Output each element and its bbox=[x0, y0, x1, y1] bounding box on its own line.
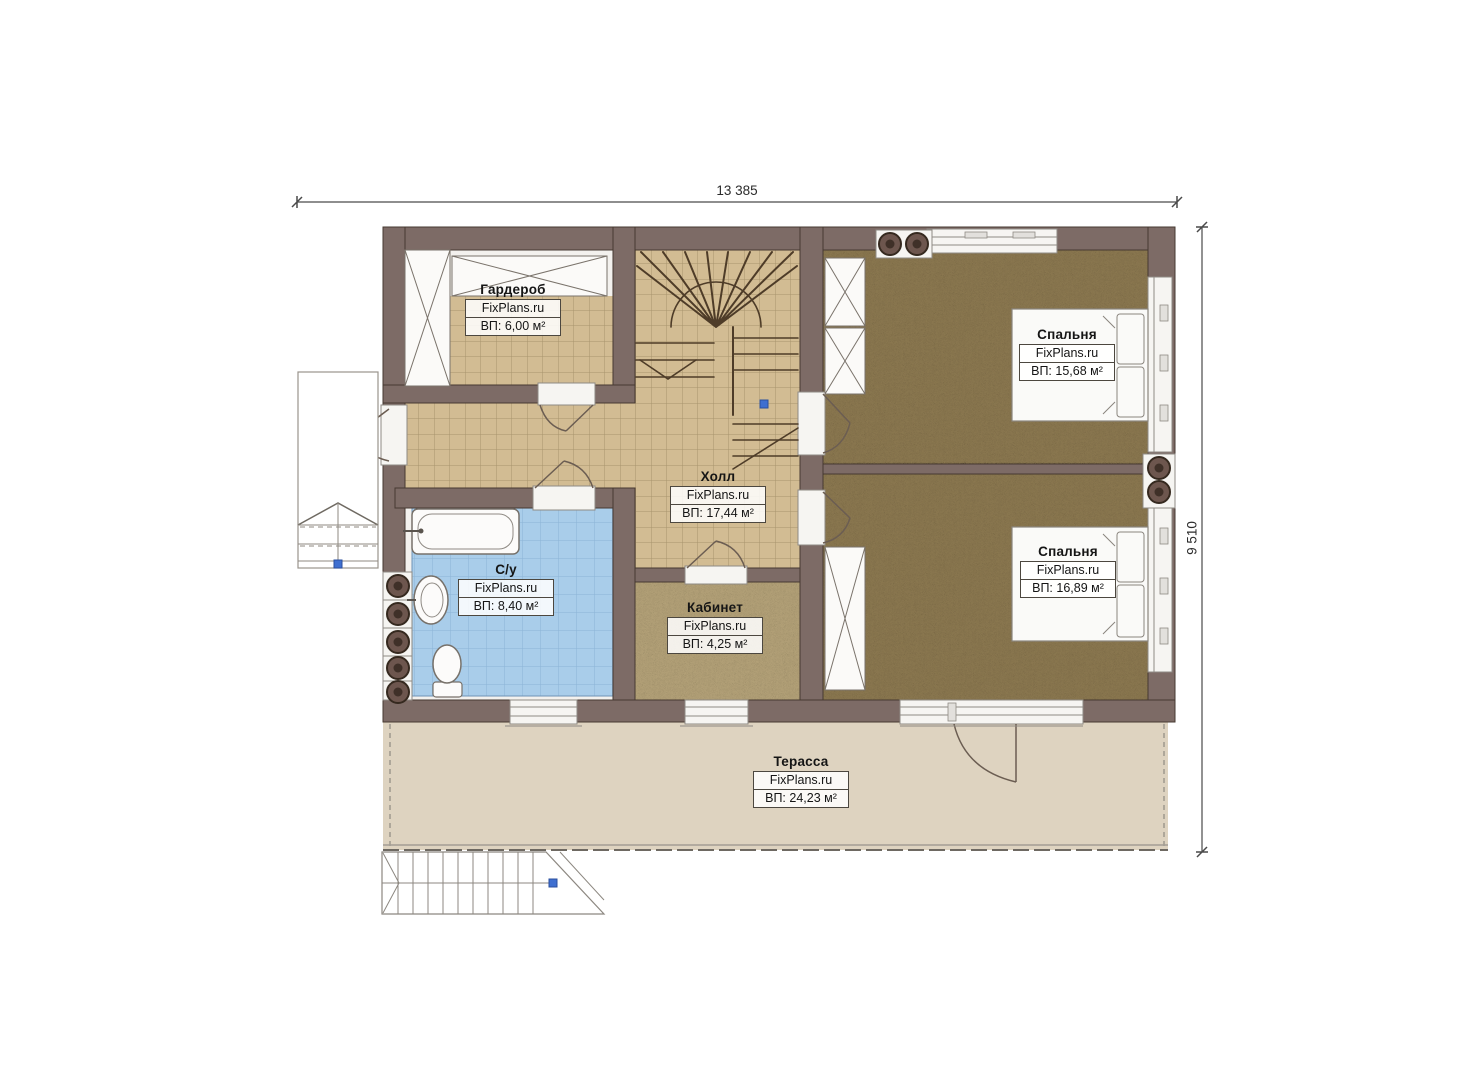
room-title: Терасса bbox=[753, 754, 849, 769]
bathtub bbox=[403, 509, 519, 554]
window-bedroom1 bbox=[1148, 277, 1172, 452]
room-title: Холл bbox=[670, 469, 766, 484]
dimension-width-label: 13 385 bbox=[710, 183, 763, 198]
room-brand: FixPlans.ru bbox=[670, 486, 766, 505]
room-area: ВП: 15,68 м² bbox=[1019, 362, 1115, 381]
room-brand: FixPlans.ru bbox=[667, 617, 763, 636]
closet-icon bbox=[825, 258, 865, 326]
wall-wardrobe-stairs bbox=[613, 227, 635, 403]
closet-icon bbox=[825, 547, 865, 690]
vent-block-top bbox=[876, 230, 932, 258]
room-label-bedroom2: Спальня FixPlans.ru ВП: 16,89 м² bbox=[1020, 544, 1116, 598]
room-brand: FixPlans.ru bbox=[458, 579, 554, 598]
room-label-office: Кабинет FixPlans.ru ВП: 4,25 м² bbox=[667, 600, 763, 654]
wall-hall-bedrooms bbox=[800, 227, 823, 700]
room-area: ВП: 4,25 м² bbox=[667, 635, 763, 654]
window-terrace-right bbox=[680, 700, 753, 726]
wall-bathroom-top bbox=[395, 488, 635, 508]
ventilation-icon bbox=[387, 575, 409, 703]
room-title: Гардероб bbox=[465, 282, 561, 297]
room-brand: FixPlans.ru bbox=[753, 771, 849, 790]
room-label-terrace: Терасса FixPlans.ru ВП: 24,23 м² bbox=[753, 754, 849, 808]
room-title: С/у bbox=[458, 562, 554, 577]
room-area: ВП: 8,40 м² bbox=[458, 597, 554, 616]
room-label-wardrobe: Гардероб FixPlans.ru ВП: 6,00 м² bbox=[465, 282, 561, 336]
window-bedroom2 bbox=[1148, 500, 1172, 672]
entrance-porch bbox=[298, 372, 378, 568]
wall-wardrobe-bottom bbox=[383, 385, 635, 403]
room-title: Спальня bbox=[1020, 544, 1116, 559]
room-label-bedroom1: Спальня FixPlans.ru ВП: 15,68 м² bbox=[1019, 327, 1115, 381]
room-label-hall: Холл FixPlans.ru ВП: 17,44 м² bbox=[670, 469, 766, 523]
room-label-bathroom: С/у FixPlans.ru ВП: 8,40 м² bbox=[458, 562, 554, 616]
room-title: Кабинет bbox=[667, 600, 763, 615]
closet-icon bbox=[405, 250, 450, 386]
vent-block-right bbox=[1143, 454, 1175, 508]
dimension-height-label: 9 510 bbox=[1185, 521, 1200, 555]
room-area: ВП: 17,44 м² bbox=[670, 504, 766, 523]
room-area: ВП: 16,89 м² bbox=[1020, 579, 1116, 598]
wall-bathroom-right bbox=[613, 488, 635, 700]
wall-bedroom-divider bbox=[823, 464, 1148, 474]
room-title: Спальня bbox=[1019, 327, 1115, 342]
room-brand: FixPlans.ru bbox=[465, 299, 561, 318]
room-brand: FixPlans.ru bbox=[1019, 344, 1115, 363]
vent-block-left bbox=[383, 572, 412, 703]
room-brand: FixPlans.ru bbox=[1020, 561, 1116, 580]
window-top bbox=[927, 229, 1057, 253]
closet-icon bbox=[825, 328, 865, 394]
terrace-stair bbox=[382, 852, 604, 914]
marker-dot-icon bbox=[549, 879, 557, 887]
floor-plan-page: 13 385 9 510 Гардероб FixPlans.ru ВП: 6,… bbox=[0, 0, 1474, 1080]
window-terrace-left bbox=[505, 700, 582, 726]
toilet bbox=[433, 645, 462, 697]
floor-plan-drawing bbox=[0, 0, 1474, 1080]
marker-dot-icon bbox=[760, 400, 768, 408]
room-area: ВП: 24,23 м² bbox=[753, 789, 849, 808]
marker-dot-icon bbox=[334, 560, 342, 568]
room-area: ВП: 6,00 м² bbox=[465, 317, 561, 336]
